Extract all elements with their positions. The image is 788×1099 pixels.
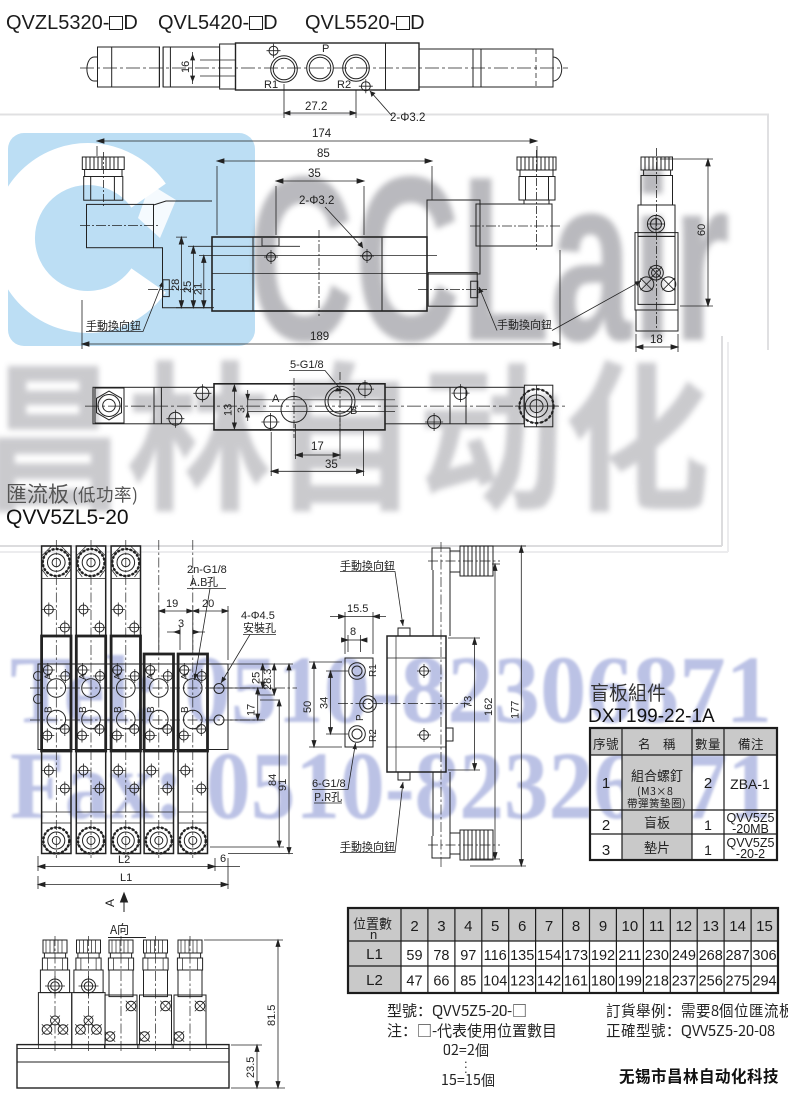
svg-text:2: 2 (704, 775, 712, 792)
svg-text:12: 12 (675, 918, 692, 935)
svg-text:3: 3 (437, 918, 445, 935)
svg-text:275: 275 (725, 974, 749, 990)
svg-text:n: n (370, 927, 377, 942)
svg-text:173: 173 (564, 948, 588, 964)
svg-text:199: 199 (618, 974, 642, 990)
svg-text:1: 1 (602, 775, 610, 792)
svg-text:249: 249 (672, 948, 696, 964)
svg-text:256: 256 (699, 974, 723, 990)
svg-text:10: 10 (622, 918, 639, 935)
svg-text:218: 218 (645, 974, 669, 990)
svg-text:47: 47 (406, 974, 422, 990)
svg-text:192: 192 (591, 948, 615, 964)
svg-text:9: 9 (599, 918, 607, 935)
svg-text:-20-2: -20-2 (736, 847, 765, 861)
svg-text:154: 154 (537, 948, 561, 964)
svg-text:14: 14 (729, 918, 746, 935)
svg-text:2: 2 (410, 918, 418, 935)
svg-text:97: 97 (460, 948, 476, 964)
svg-text:L2: L2 (366, 972, 383, 989)
svg-text:123: 123 (510, 974, 534, 990)
svg-text:2: 2 (602, 817, 610, 834)
svg-text:268: 268 (699, 948, 723, 964)
svg-text:135: 135 (510, 948, 534, 964)
svg-text:237: 237 (672, 974, 696, 990)
svg-text:4: 4 (464, 918, 472, 935)
svg-text:287: 287 (725, 948, 749, 964)
svg-text:1: 1 (704, 817, 712, 833)
svg-text:78: 78 (433, 948, 449, 964)
svg-text:59: 59 (406, 948, 422, 964)
svg-text:116: 116 (484, 948, 507, 964)
svg-text:211: 211 (618, 948, 641, 964)
svg-text:15: 15 (756, 918, 773, 935)
svg-text:ZBA-1: ZBA-1 (730, 776, 770, 792)
svg-text:230: 230 (645, 948, 669, 964)
svg-text:3: 3 (602, 842, 610, 859)
svg-text:8: 8 (572, 918, 580, 935)
svg-text:161: 161 (564, 974, 588, 990)
svg-text:6: 6 (518, 918, 526, 935)
svg-text:11: 11 (649, 918, 665, 935)
svg-text:5: 5 (491, 918, 499, 935)
svg-text:L1: L1 (366, 946, 383, 963)
svg-text:66: 66 (433, 974, 449, 990)
svg-text:104: 104 (483, 974, 507, 990)
svg-text:13: 13 (702, 918, 719, 935)
svg-text:306: 306 (752, 948, 776, 964)
svg-text:180: 180 (591, 974, 615, 990)
svg-text:294: 294 (752, 974, 776, 990)
svg-text:1: 1 (704, 842, 712, 858)
svg-text:142: 142 (537, 974, 561, 990)
svg-text:85: 85 (460, 974, 476, 990)
svg-text:7: 7 (545, 918, 553, 935)
svg-text:-20MB: -20MB (732, 822, 769, 836)
